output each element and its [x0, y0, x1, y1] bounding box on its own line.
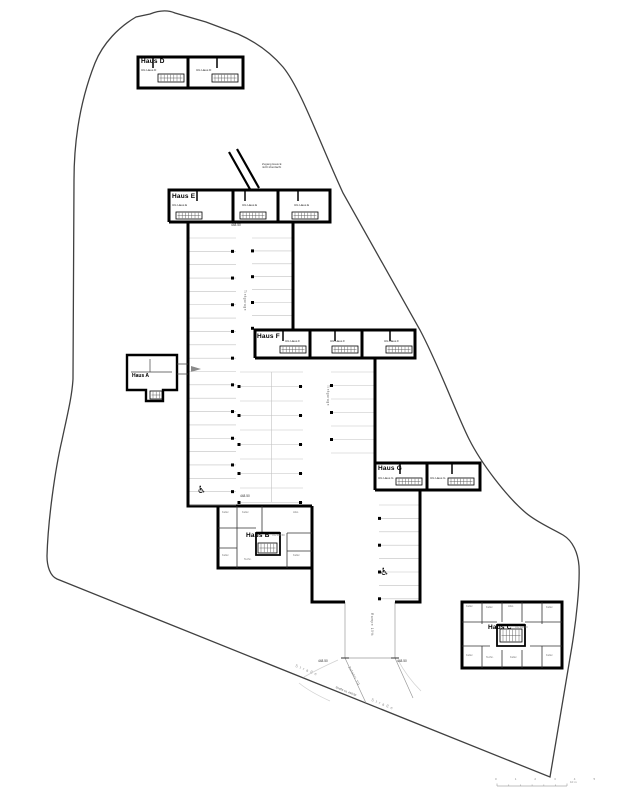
elevation-label: 448.50 [318, 660, 328, 664]
unit-label: UG Haus E [172, 204, 187, 207]
unit-label: UG Haus G [430, 477, 446, 480]
ramp-label: Rampe 15% [369, 613, 373, 636]
passage-arrow-icon [191, 366, 201, 372]
garage-aisle-label: Tiefgarage [325, 385, 329, 406]
room-label: Keller [546, 607, 553, 610]
haus-c-sub-label: UG 448.50 [515, 627, 528, 630]
elevation-label: 448.50 [231, 224, 241, 228]
haus-b-sub-label: UG 448.50 [272, 535, 285, 538]
unit-label: UG Haus F [384, 340, 399, 343]
room-label: Abst. [508, 606, 514, 609]
ramp-lines [345, 602, 413, 703]
haus-e-label: Haus E [172, 193, 195, 200]
entrance-note-line2: nicht überdacht [262, 166, 281, 169]
room-label: Techn. [486, 657, 494, 660]
room-label: Keller [466, 655, 473, 658]
room-label: Keller [466, 606, 473, 609]
haus-f-label: Haus F [257, 333, 280, 340]
unit-label: UG Haus D [196, 69, 211, 72]
room-label: Abst. [293, 512, 299, 515]
unit-label: UG Haus E [294, 204, 309, 207]
driveway-arcs [299, 660, 421, 701]
haus-a-label: Haus A [132, 374, 149, 380]
unit-label: UG Haus G [378, 477, 394, 480]
room-label: Keller [510, 657, 517, 660]
elevation-label: 448.50 [397, 660, 407, 664]
room-label: Keller [222, 555, 229, 558]
scalebar-unit: 10 m [570, 781, 577, 784]
room-label: Techn. [244, 559, 252, 562]
garage-walls [138, 57, 480, 602]
unit-label: UG Haus D [141, 69, 156, 72]
haus-g-label: Haus G [378, 465, 402, 472]
room-label: Keller [222, 512, 229, 515]
site-plan: Haus D UG Haus D UG Haus D Haus E UG Hau… [0, 0, 638, 800]
wheelchair-icon: ♿ [197, 485, 206, 496]
room-label: Keller [242, 512, 249, 515]
room-label: Keller [546, 655, 553, 658]
haus-d-label: Haus D [141, 58, 165, 65]
garage-aisle-label: Tiefgarage [242, 290, 246, 311]
entrance-note: Zugang Haus E nicht überdacht [262, 163, 281, 169]
plan-drawing [0, 0, 638, 800]
room-label: Keller [486, 607, 493, 610]
elevation-label: 448.50 [240, 495, 250, 499]
haus-c-label: Haus C [488, 624, 512, 631]
wheelchair-icon: ♿ [380, 567, 389, 578]
entrance-ramp-lines [229, 149, 259, 191]
haus-b-label: Haus B [246, 532, 270, 539]
unit-label: UG Haus F [285, 340, 300, 343]
scalebar-ticks: 0 1 2 3 4 5 [495, 778, 604, 781]
room-label: Keller [293, 555, 300, 558]
scalebar-line [497, 784, 567, 787]
unit-label: UG Haus F [330, 340, 345, 343]
unit-label: UG Haus E [242, 204, 257, 207]
